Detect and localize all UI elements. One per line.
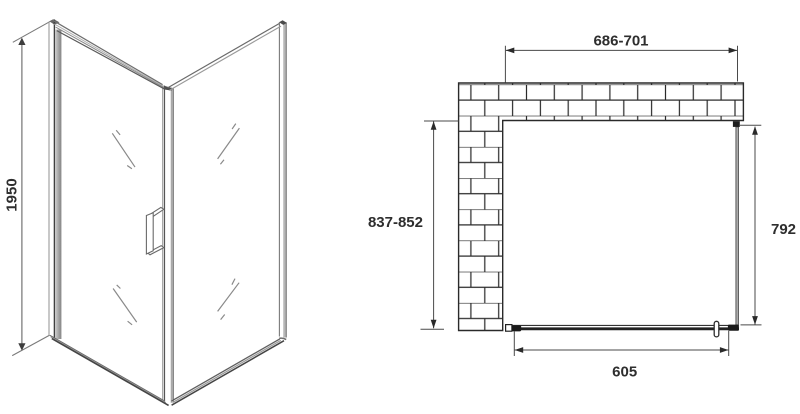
svg-text:605: 605 <box>612 364 637 381</box>
svg-text:686-701: 686-701 <box>593 33 648 50</box>
svg-text:792: 792 <box>771 221 796 238</box>
svg-text:1950: 1950 <box>4 178 21 211</box>
svg-text:837-852: 837-852 <box>368 214 423 231</box>
